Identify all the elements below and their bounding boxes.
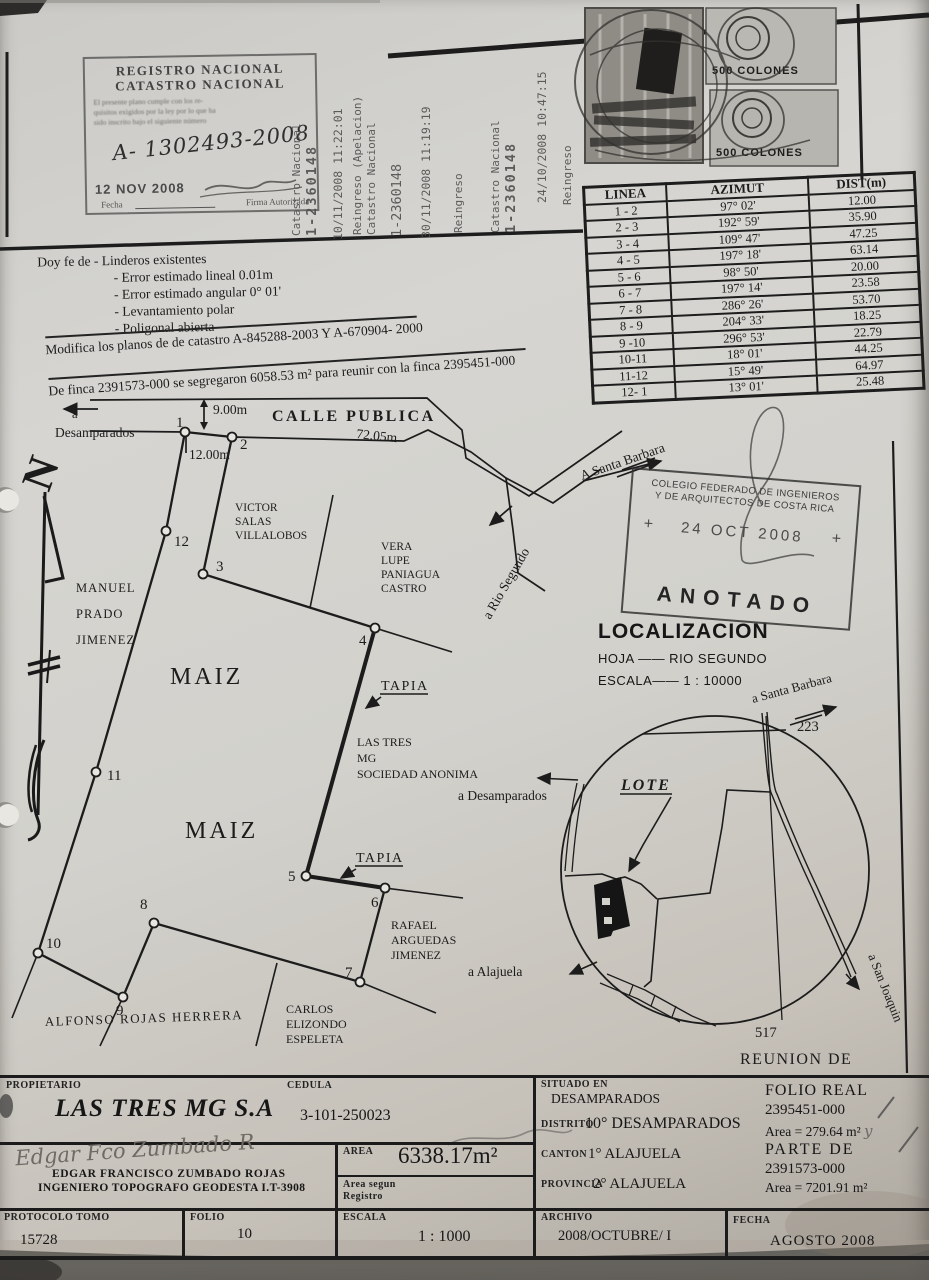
neighbor-manuel-3: JIMENEZ xyxy=(76,633,135,647)
neighbor-victor-3: VILLALOBOS xyxy=(235,530,307,542)
vstamp-catastro-2: Catastro Nacional1-2360148 xyxy=(489,73,520,233)
situado-label: SITUADO EN xyxy=(541,1079,608,1090)
localizacion-escala: ESCALA—— 1 : 10000 xyxy=(598,673,769,688)
cfia-date: 24 OCT 2008 xyxy=(680,519,804,546)
owner-line-1: LAS TRES xyxy=(357,735,412,749)
engineer-title: INGENIERO TOPOGRAFO GEODESTA I.T-3908 xyxy=(38,1182,305,1194)
folio-real-label: FOLIO REAL xyxy=(765,1082,868,1100)
label-a: a xyxy=(72,407,78,421)
localizacion-title: LOCALIZACION xyxy=(598,620,769,644)
protocolo-value: 15728 xyxy=(20,1232,58,1249)
vstamp-reingreso-apelacion: Reingreso (Apelacion)Catastro Nacional xyxy=(351,55,379,235)
vstamp-date-3: 24/10/2008 10:47:15 xyxy=(535,28,549,203)
localizacion-block: LOCALIZACION HOJA —— RIO SEGUNDO ESCALA—… xyxy=(598,620,769,688)
escala-label: ESCALA xyxy=(343,1212,387,1223)
tb-border-bottom xyxy=(0,1256,929,1260)
inset-labels: LOTE 223 517 a Santa Barbara a San Joaqu… xyxy=(458,670,906,1041)
propietario-label: PROPIETARIO xyxy=(6,1080,81,1091)
protocolo-label: PROTOCOLO TOMO xyxy=(4,1212,110,1223)
fecha-line xyxy=(135,197,215,209)
owner-line-2: MG xyxy=(357,751,377,765)
handwritten-y: y xyxy=(864,1122,872,1140)
vstamp-date-2: 30/11/2008 11:19:19 xyxy=(419,93,433,238)
tb-v-535 xyxy=(533,1075,536,1259)
registro-title-2: CATASTRO NACIONAL xyxy=(85,75,315,94)
vstamp-catastro-1: Catastro Nacional1-2360148 xyxy=(290,88,321,236)
inset-alajuela: a Alajuela xyxy=(468,964,522,979)
inset-517: 517 xyxy=(755,1025,777,1041)
registro-nacional-stamp: REGISTRO NACIONAL CATASTRO NACIONAL El p… xyxy=(83,53,320,215)
tb-border-top xyxy=(0,1075,929,1078)
neighbor-carlos-2: ELIZONDO xyxy=(286,1017,347,1031)
tb-h-100 xyxy=(335,1175,535,1177)
neighbor-victor-1: VICTOR xyxy=(235,502,278,514)
area-registro-label-1: Area segun xyxy=(343,1179,396,1190)
label-calle-publica: CALLE PUBLICA xyxy=(272,408,436,425)
neighbor-carlos-1: CARLOS xyxy=(286,1002,333,1016)
folio-label: FOLIO xyxy=(190,1212,225,1223)
cedula-label: CEDULA xyxy=(287,1080,332,1091)
folio-real-value: 2395451-000 xyxy=(765,1102,845,1119)
lote-shape xyxy=(594,877,630,939)
canton-label: CANTON xyxy=(541,1149,587,1160)
north-arrow: N xyxy=(12,450,69,840)
neighbor-rafael-3: JIMENEZ xyxy=(391,948,441,962)
escala-value: 1 : 1000 xyxy=(418,1228,470,1246)
point-3: 3 xyxy=(216,559,224,575)
point-4: 4 xyxy=(359,633,367,649)
survey-vertices xyxy=(34,428,390,1002)
provincia-value: 2° ALAJUELA xyxy=(593,1176,686,1193)
neighbor-manuel-2: PRADO xyxy=(76,607,123,621)
situado-value: DESAMPARADOS xyxy=(551,1091,660,1107)
fecha-label: Fecha xyxy=(101,199,123,209)
point-7: 7 xyxy=(345,965,353,981)
label-maiz-2: MAIZ xyxy=(185,818,258,844)
cfia-anotado-stamp: COLEGIO FEDERADO DE INGENIEROS Y DE ARQU… xyxy=(621,467,862,631)
vstamp-date-1: 10/11/2008 11:22:01 xyxy=(331,94,345,240)
neighbor-victor-2: SALAS xyxy=(235,516,271,528)
tb-v-183 xyxy=(182,1208,185,1259)
neighbor-carlos-3: ESPELETA xyxy=(286,1032,344,1046)
neighbor-vera-1: VERA xyxy=(381,541,413,553)
point-9: 9 xyxy=(116,1003,124,1019)
engineer-name: EDGAR FRANCISCO ZUMBADO ROJAS xyxy=(52,1168,286,1180)
north-letter: N xyxy=(12,450,69,497)
neighbor-rafael-2: ARGUEDAS xyxy=(391,933,456,947)
title-block-table: PROPIETARIO LAS TRES MG S.A CEDULA 3-101… xyxy=(0,1075,929,1259)
reunion-de-text: REUNION DE xyxy=(740,1051,852,1069)
distrito-value: 10° DESAMPARADOS xyxy=(585,1115,741,1133)
parte-de-area: Area = 7201.91 m² xyxy=(765,1180,867,1196)
archivo-label: ARCHIVO xyxy=(541,1212,593,1223)
revenue-stamps: 500 COLONES 500 COLONES xyxy=(575,8,838,166)
label-dim-72m: 72.05m xyxy=(356,426,399,445)
cfia-plus-right: + xyxy=(831,530,842,549)
fecha-value: AGOSTO 2008 xyxy=(770,1233,875,1250)
label-dim-9m: 9.00m xyxy=(213,402,248,417)
point-12: 12 xyxy=(174,534,189,550)
label-rio-segundo: a Rio Segundo xyxy=(480,545,533,622)
cfia-plus-left: + xyxy=(643,515,654,534)
area-value: 6338.17m² xyxy=(398,1143,498,1169)
cfia-anotado: ANOTADO xyxy=(623,580,850,622)
neighbor-vera-2: LUPE xyxy=(381,555,410,567)
area-label: AREA xyxy=(343,1146,373,1157)
point-1: 1 xyxy=(176,415,184,431)
tb-v-337 xyxy=(335,1142,338,1259)
point-2: 2 xyxy=(240,437,248,453)
point-10: 10 xyxy=(46,936,61,952)
neighbor-vera-3: PANIAGUA xyxy=(381,569,441,581)
label-tapia-1: TAPIA xyxy=(381,679,429,694)
location-inset xyxy=(538,707,869,1026)
registro-number-handwritten: A- 1302493-2008 xyxy=(111,121,310,166)
tb-v-727 xyxy=(725,1208,728,1259)
registro-date-stamp: 12 NOV 2008 xyxy=(95,180,185,197)
inset-lote: LOTE xyxy=(620,777,671,794)
inset-223: 223 xyxy=(797,719,819,735)
label-desamparados: Desamparados xyxy=(55,425,134,440)
vstamp-number-2: 1-2360148 xyxy=(389,92,406,237)
neighbor-rafael-1: RAFAEL xyxy=(391,918,437,932)
vstamp-reingreso-1: Reingreso xyxy=(452,148,466,233)
owner-line-3: SOCIEDAD ANONIMA xyxy=(357,767,478,781)
cert-item-2: - Error estimado angular 0° 01' xyxy=(114,282,281,302)
folio-real-area: Area = 279.64 m² y xyxy=(765,1122,873,1140)
neighbor-alfonso: ALFONSO ROJAS HERRERA xyxy=(45,1007,244,1029)
point-11: 11 xyxy=(107,768,121,784)
label-tapia-2: TAPIA xyxy=(356,851,404,866)
parte-de-value: 2391573-000 xyxy=(765,1161,845,1178)
cedula-value: 3-101-250023 xyxy=(300,1107,391,1125)
scanned-cadastral-plan: 500 COLONES 500 COLONES xyxy=(0,0,929,1280)
fecha-label: FECHA xyxy=(733,1215,771,1226)
vstamp-reingreso-2: Reingreso xyxy=(561,130,575,205)
inset-desamparados: a Desamparados xyxy=(458,788,547,803)
label-dim-12m: 12.00m xyxy=(189,447,230,462)
point-8: 8 xyxy=(140,897,148,913)
point-5: 5 xyxy=(288,869,296,885)
engineer-signature: Edgar Fco Zumbado R xyxy=(14,1130,255,1171)
inset-san-joaquin: a San Joaquin xyxy=(865,952,906,1025)
folio-value: 10 xyxy=(237,1226,252,1243)
survey-bearing-table: LINEA AZIMUT DIST(m) 1 - 297° 02'12.00 2… xyxy=(582,171,926,404)
neighbor-manuel-1: MANUEL xyxy=(76,581,135,595)
point-6: 6 xyxy=(371,895,379,911)
tb-h-133 xyxy=(0,1208,929,1211)
drawing-labels: CALLE PUBLICA 9.00m 72.05m 12.00m a Desa… xyxy=(45,402,667,1046)
parcel-boundary xyxy=(38,432,385,997)
neighbor-vera-4: CASTRO xyxy=(381,583,426,595)
label-maiz-1: MAIZ xyxy=(170,664,243,690)
archivo-value: 2008/OCTUBRE/ I xyxy=(558,1228,671,1245)
propietario-value: LAS TRES MG S.A xyxy=(55,1095,274,1123)
canton-value: 1° ALAJUELA xyxy=(588,1146,681,1163)
parte-de-label: PARTE DE xyxy=(765,1141,855,1159)
localizacion-hoja: HOJA —— RIO SEGUNDO xyxy=(598,651,769,666)
area-registro-label-2: Registro xyxy=(343,1191,383,1202)
